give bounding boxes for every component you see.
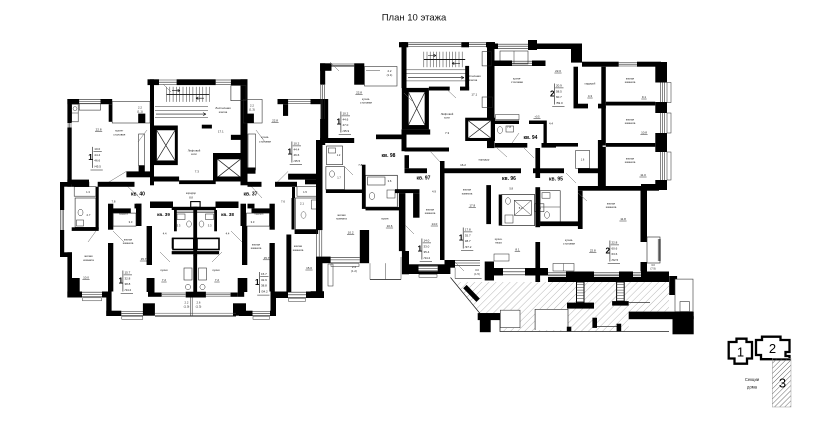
svg-text:холл: холл — [191, 153, 197, 156]
svg-text:17.8: 17.8 — [469, 204, 475, 208]
svg-text:(1.1): (1.1) — [387, 73, 393, 77]
svg-text:коридор: коридор — [479, 158, 490, 162]
svg-text:17.1: 17.1 — [218, 130, 224, 134]
svg-text:46.6: 46.6 — [294, 153, 300, 157]
svg-text:комната: комната — [625, 160, 636, 164]
svg-text:1.5: 1.5 — [303, 190, 307, 194]
svg-text:8.1: 8.1 — [515, 248, 520, 252]
svg-text:комната: комната — [425, 211, 436, 215]
svg-text:11.0: 11.0 — [640, 173, 646, 177]
svg-text:35.4: 35.4 — [424, 250, 430, 254]
svg-text:4.4: 4.4 — [549, 122, 553, 126]
svg-text:холл: холл — [444, 116, 450, 119]
svg-text:клетка: клетка — [219, 110, 228, 114]
svg-text:15.7: 15.7 — [125, 271, 131, 275]
svg-text:дома: дома — [747, 385, 758, 390]
svg-text:4.4: 4.4 — [163, 232, 167, 236]
svg-text:+0.5: +0.5 — [535, 116, 541, 119]
svg-text:58.5: 58.5 — [556, 89, 562, 93]
svg-text:10.2: 10.2 — [343, 112, 349, 116]
svg-text:3.3: 3.3 — [177, 224, 181, 228]
svg-text:20.9: 20.9 — [556, 84, 562, 88]
svg-text:32.9: 32.9 — [261, 278, 267, 282]
svg-text:22.8: 22.8 — [96, 127, 102, 131]
svg-text:/45.5: /45.5 — [94, 164, 101, 168]
svg-text:5.8: 5.8 — [509, 186, 513, 190]
svg-text:кв. 98: кв. 98 — [382, 153, 396, 159]
svg-text:14.0: 14.0 — [424, 239, 430, 243]
svg-text:коридор: коридор — [186, 192, 196, 195]
svg-text:63.6: 63.6 — [612, 252, 618, 256]
svg-text:(1.5): (1.5) — [474, 272, 480, 276]
svg-text:(1.2): (1.2) — [351, 269, 357, 273]
svg-text:кв. 38: кв. 38 — [221, 212, 234, 217]
svg-text:столовая: столовая — [113, 133, 125, 137]
svg-text:4.3: 4.3 — [588, 94, 593, 98]
svg-text:10.2: 10.2 — [348, 231, 354, 235]
svg-text:/59.0: /59.0 — [556, 101, 563, 105]
svg-text:47.0: 47.0 — [343, 123, 349, 127]
svg-text:22.8: 22.8 — [590, 249, 596, 253]
svg-text:11.8: 11.8 — [620, 217, 626, 221]
svg-text:1: 1 — [737, 345, 744, 360]
svg-text:10.0: 10.0 — [94, 147, 100, 151]
svg-text:столовая: столовая — [259, 139, 271, 143]
svg-text:33.0: 33.0 — [424, 244, 430, 248]
svg-text:Лифтовой: Лифтовой — [188, 149, 201, 153]
svg-text:Секции: Секции — [745, 377, 760, 382]
svg-text:/34.2: /34.2 — [125, 288, 132, 292]
svg-text:7.8: 7.8 — [507, 125, 511, 129]
svg-text:17.8: 17.8 — [465, 228, 471, 232]
svg-text:22.0: 22.0 — [555, 69, 561, 73]
svg-text:22.8: 22.8 — [356, 91, 362, 95]
svg-text:ниша: ниша — [495, 241, 502, 244]
svg-text:кв. 37: кв. 37 — [244, 192, 258, 198]
svg-text:15.7: 15.7 — [261, 272, 267, 276]
svg-text:столовая: столовая — [511, 80, 523, 84]
svg-text:кухня: кухня — [160, 268, 168, 272]
svg-text:22.8: 22.8 — [272, 119, 278, 123]
svg-text:клетка: клетка — [469, 78, 478, 82]
svg-text:2.7: 2.7 — [87, 213, 91, 217]
svg-text:7.3: 7.3 — [195, 169, 200, 173]
svg-text:Лифтовой: Лифтовой — [441, 112, 454, 116]
svg-text:10.6: 10.6 — [387, 224, 393, 228]
svg-text:38.7: 38.7 — [465, 239, 471, 243]
svg-text:8.8: 8.8 — [189, 195, 193, 199]
svg-text:46.6: 46.6 — [94, 159, 100, 163]
svg-text:3: 3 — [779, 376, 786, 391]
svg-text:(1.0): (1.0) — [184, 305, 190, 309]
svg-text:7.8: 7.8 — [112, 200, 116, 204]
svg-text:3.0: 3.0 — [475, 268, 479, 272]
svg-text:7.3: 7.3 — [445, 131, 450, 135]
svg-text:14.0: 14.0 — [431, 222, 437, 226]
svg-text:3.3: 3.3 — [129, 220, 133, 224]
svg-text:15.7: 15.7 — [141, 257, 147, 261]
svg-text:44.6: 44.6 — [343, 117, 349, 121]
svg-text:9.1: 9.1 — [642, 95, 647, 99]
svg-text:2.1: 2.1 — [300, 202, 304, 206]
svg-text:7.2: 7.2 — [215, 278, 220, 282]
svg-text:22.8: 22.8 — [612, 241, 618, 245]
svg-text:/34.2: /34.2 — [261, 290, 268, 294]
svg-text:38.8: 38.8 — [261, 284, 267, 288]
svg-text:17.1: 17.1 — [471, 93, 477, 97]
svg-text:35.7: 35.7 — [465, 233, 471, 237]
svg-text:комната: комната — [251, 246, 262, 250]
svg-text:1.2: 1.2 — [337, 153, 341, 157]
svg-text:15.0: 15.0 — [306, 266, 312, 270]
svg-text:комната: комната — [606, 205, 617, 209]
svg-text:60.7: 60.7 — [556, 95, 562, 99]
svg-text:1.3: 1.3 — [86, 190, 90, 194]
svg-text:/37.2: /37.2 — [465, 245, 472, 249]
svg-text:комната: комната — [625, 80, 636, 84]
svg-text:комната: комната — [293, 248, 304, 252]
svg-text:столовая: столовая — [563, 242, 575, 246]
svg-text:7.6: 7.6 — [281, 200, 285, 204]
svg-text:3.0: 3.0 — [651, 263, 655, 267]
svg-text:2: 2 — [769, 341, 776, 356]
svg-text:1.6: 1.6 — [581, 159, 585, 162]
svg-text:кв. 40: кв. 40 — [131, 192, 145, 198]
svg-text:комната: комната — [462, 191, 473, 195]
svg-text:(1.1): (1.1) — [137, 110, 143, 114]
svg-text:кв. 95: кв. 95 — [549, 177, 563, 183]
svg-text:кухня: кухня — [212, 268, 220, 272]
svg-text:32.8: 32.8 — [125, 276, 131, 280]
svg-text:16.2: 16.2 — [460, 163, 466, 167]
svg-text:10.0: 10.0 — [83, 276, 89, 280]
svg-text:комната: комната — [83, 258, 94, 262]
svg-text:44.4: 44.4 — [294, 147, 300, 151]
svg-text:3.3: 3.3 — [251, 220, 255, 224]
svg-text:комната: комната — [123, 241, 134, 245]
svg-text:гардероб: гардероб — [119, 214, 129, 216]
svg-text:7.2: 7.2 — [162, 278, 167, 282]
svg-text:гардероб: гардероб — [585, 83, 596, 86]
svg-text:комната: комната — [625, 121, 636, 125]
svg-text:кв. 94: кв. 94 — [524, 135, 538, 141]
svg-text:10.8: 10.8 — [641, 131, 647, 135]
svg-text:4.9: 4.9 — [432, 189, 436, 193]
svg-text:38.8: 38.8 — [125, 282, 131, 286]
svg-text:/34.2: /34.2 — [424, 256, 431, 260]
svg-text:комната: комната — [336, 217, 347, 221]
svg-text:3.3: 3.3 — [208, 224, 212, 228]
svg-text:1.7: 1.7 — [337, 176, 341, 180]
svg-text:10.2: 10.2 — [294, 142, 300, 146]
svg-text:15.7: 15.7 — [264, 256, 270, 260]
svg-text:кухня: кухня — [381, 217, 389, 221]
svg-text:кв. 97: кв. 97 — [417, 176, 431, 182]
svg-text:План 10 этажа: План 10 этажа — [382, 13, 447, 24]
svg-text:4.4: 4.4 — [226, 232, 230, 236]
svg-text:/45.9: /45.9 — [343, 129, 350, 133]
svg-text:кв. 96: кв. 96 — [502, 176, 516, 182]
svg-text:(1.3): (1.3) — [249, 108, 255, 112]
svg-text:/45.5: /45.5 — [294, 159, 301, 163]
svg-text:/62.5: /62.5 — [612, 258, 619, 262]
svg-text:кв. 39: кв. 39 — [157, 212, 170, 217]
svg-text:(7.9): (7.9) — [650, 267, 655, 271]
svg-text:столовая: столовая — [360, 101, 372, 105]
svg-text:гардероб: гардероб — [254, 214, 264, 216]
svg-text:60.6: 60.6 — [612, 246, 618, 250]
svg-text:3.6: 3.6 — [388, 179, 392, 183]
svg-text:(1.3): (1.3) — [196, 305, 202, 309]
svg-text:44.4: 44.4 — [94, 153, 100, 157]
